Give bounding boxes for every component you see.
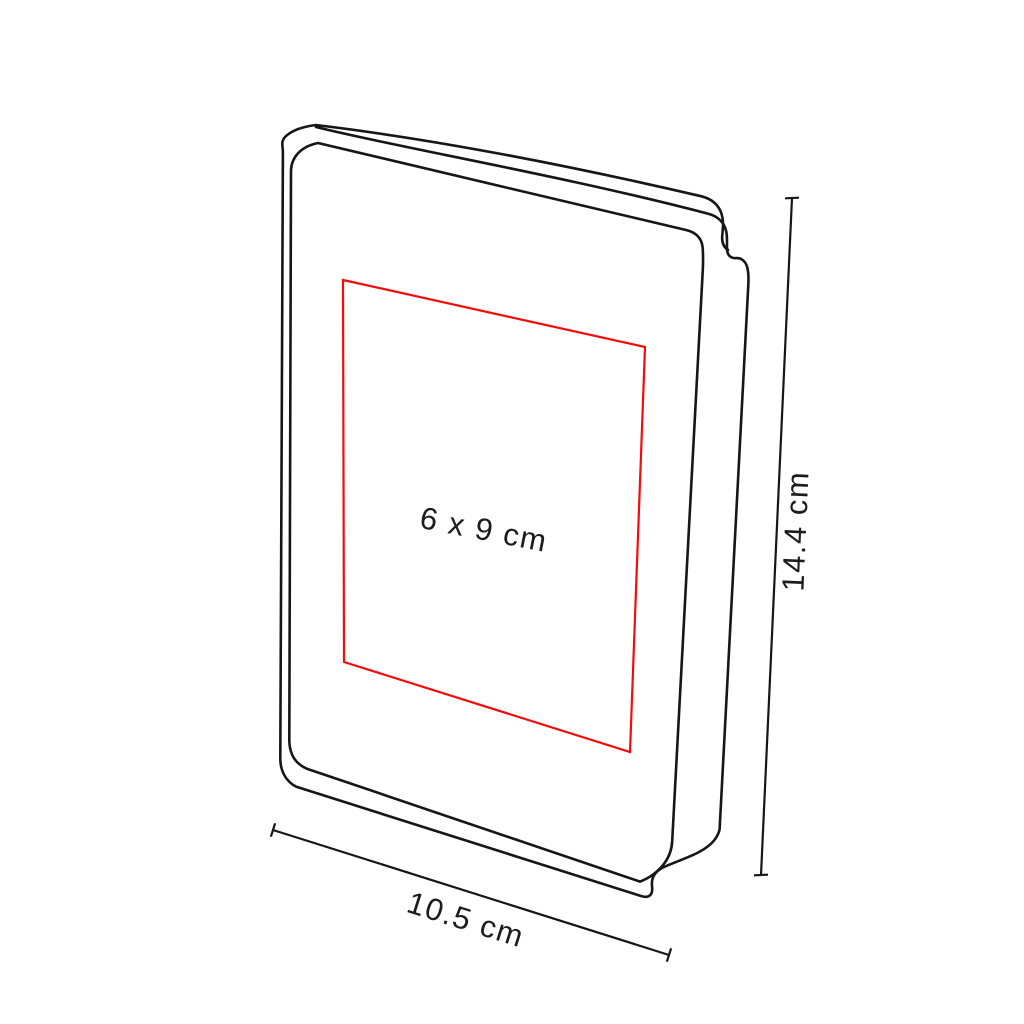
width-dimension: 10.5 cm [271,823,671,961]
dimension-diagram: 10.5 cm 14.4 cm 6 x 9 cm [0,0,1024,1024]
height-dimension-tick-top [785,198,799,199]
print-area-label: 6 x 9 cm [417,500,550,559]
height-dimension: 14.4 cm [754,198,816,876]
notebook-outer-outline [280,125,748,897]
width-dimension-label: 10.5 cm [403,885,529,955]
height-dimension-tick-bottom [754,875,768,876]
notebook-inner-crease-line [289,143,703,882]
height-dimension-label: 14.4 cm [775,470,815,592]
diagram-canvas: 10.5 cm 14.4 cm 6 x 9 cm [0,0,1024,1024]
